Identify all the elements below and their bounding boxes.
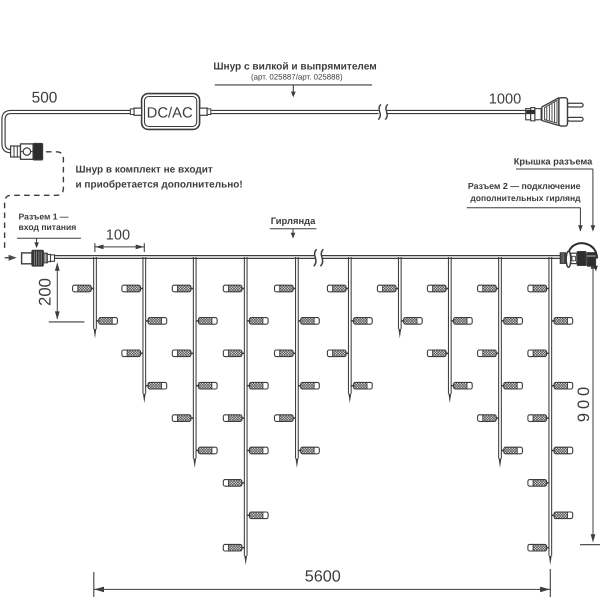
svg-text:Шнур в комплект не входит: Шнур в комплект не входит [76,164,213,175]
svg-text:Разъем 1 —: Разъем 1 — [19,211,69,221]
svg-text:1000: 1000 [489,91,521,107]
svg-text:Гирлянда: Гирлянда [271,215,316,226]
svg-text:Крышка разъема: Крышка разъема [514,156,593,166]
svg-text:Разъем 2 — подключение: Разъем 2 — подключение [468,181,581,191]
svg-text:вход питания: вход питания [19,222,77,232]
svg-text:500: 500 [32,89,58,106]
svg-text:(арт. 025887/арт. 025888): (арт. 025887/арт. 025888) [251,73,343,82]
svg-text:и приобретается дополнительно!: и приобретается дополнительно! [76,180,243,191]
svg-text:DC/AC: DC/AC [147,105,193,121]
svg-text:5600: 5600 [305,567,341,585]
svg-text:100: 100 [106,228,130,244]
svg-text:900: 900 [575,383,593,422]
svg-text:200: 200 [36,278,55,306]
svg-text:дополнительных гирлянд: дополнительных гирлянд [470,193,581,203]
svg-text:Шнур с вилкой и выпрямителем: Шнур с вилкой и выпрямителем [213,61,376,72]
